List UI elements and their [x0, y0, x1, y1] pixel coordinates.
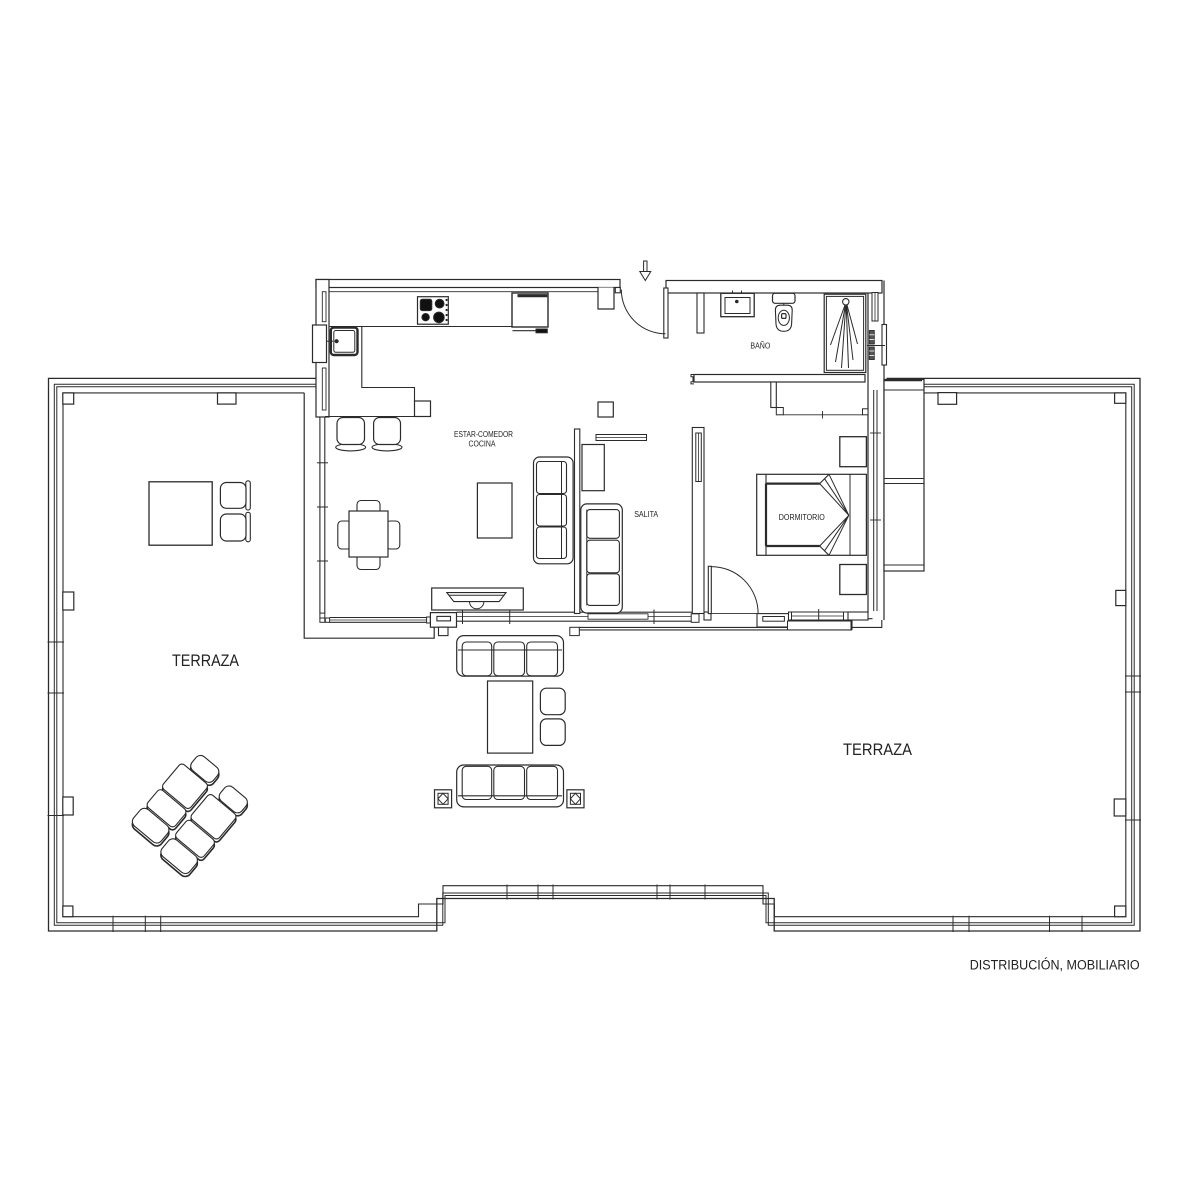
svg-text:COCINA: COCINA [469, 440, 497, 449]
svg-text:ESTAR-COMEDOR: ESTAR-COMEDOR [454, 430, 513, 439]
svg-text:SALITA: SALITA [634, 510, 659, 519]
svg-text:DISTRIBUCIÓN, MOBILIARIO: DISTRIBUCIÓN, MOBILIARIO [970, 958, 1140, 973]
svg-text:TERRAZA: TERRAZA [843, 740, 913, 759]
svg-text:DORMITORIO: DORMITORIO [779, 513, 825, 522]
svg-text:TERRAZA: TERRAZA [172, 651, 240, 670]
svg-text:BAÑO: BAÑO [750, 341, 770, 350]
